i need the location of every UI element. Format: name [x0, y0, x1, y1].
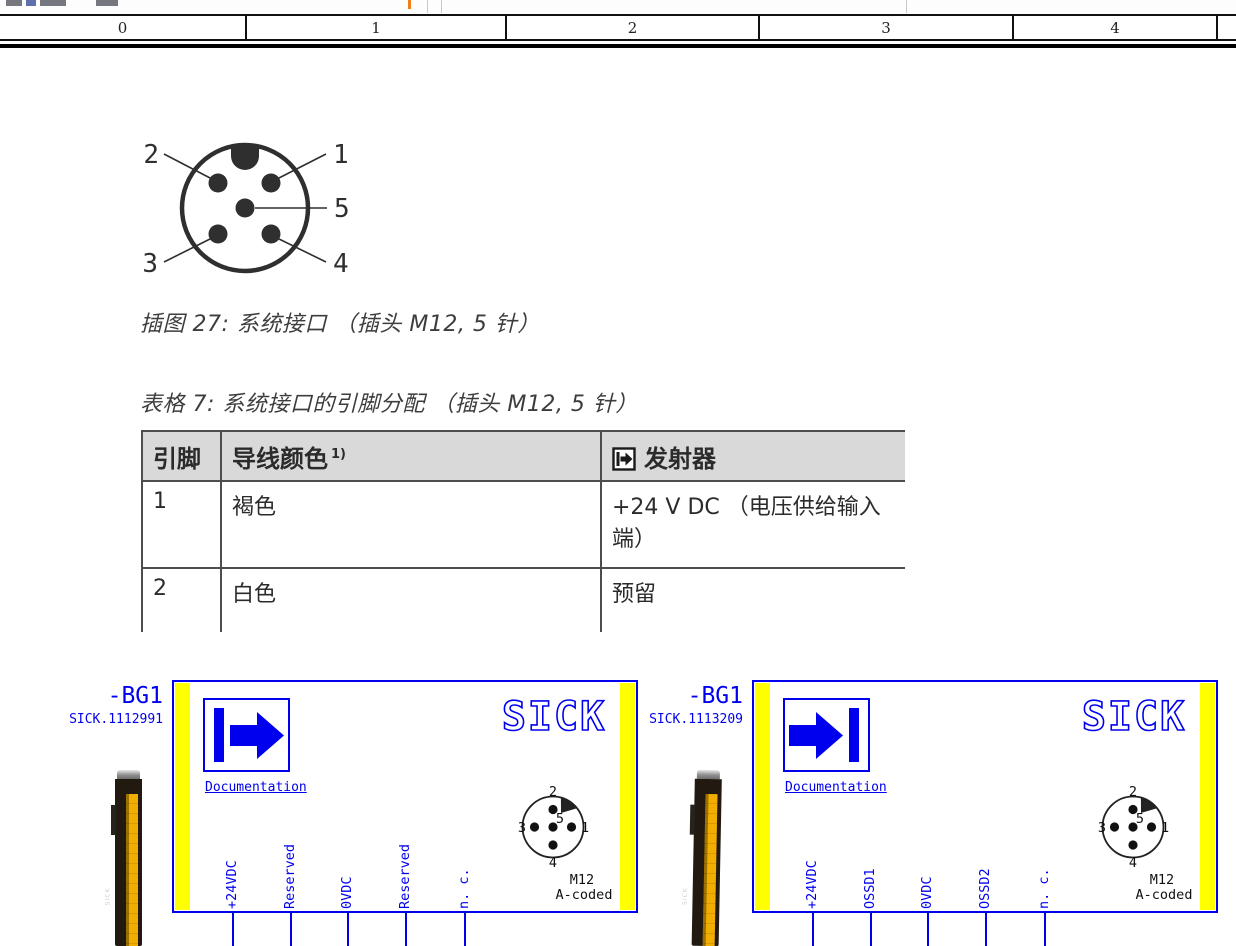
- device-yellow-stripe: [126, 794, 138, 946]
- arrow-head: [257, 712, 284, 759]
- wire[interactable]: [464, 913, 466, 946]
- toolbar-fragment: [96, 0, 118, 6]
- wire[interactable]: [1044, 913, 1046, 946]
- conn-pin-3: 3: [518, 820, 526, 836]
- wire[interactable]: [985, 913, 987, 946]
- ruler-cell-1: 1: [247, 16, 507, 39]
- device-bracket: [111, 805, 116, 835]
- pin-signal-label: 0VDC: [339, 876, 355, 909]
- device-bracket: [690, 805, 696, 835]
- device-group-receiver: -BG1 SICK.1113209 SICK SICK: [580, 655, 1236, 946]
- pin-2-dot: [209, 174, 228, 193]
- sick-logo: SICK: [1070, 692, 1198, 742]
- pin-signal-label: +24VDC: [804, 860, 820, 909]
- device-ref-tag[interactable]: -BG1: [40, 683, 163, 709]
- conn-pin-5: 5: [1136, 811, 1144, 827]
- emitter-bar: [214, 708, 224, 762]
- device-yellow-stripe: [703, 794, 718, 946]
- toolbar-separator: [441, 0, 442, 13]
- conn-pin-1: 1: [1161, 820, 1169, 836]
- pin-signal-label: Reserved: [397, 844, 413, 909]
- pin-signal-label: +24VDC: [224, 860, 240, 909]
- wire[interactable]: [870, 913, 872, 946]
- wire[interactable]: [927, 913, 929, 946]
- yellow-bar-left: [755, 683, 770, 910]
- arrow-shaft: [789, 725, 817, 746]
- cell-pin: 1: [143, 482, 222, 567]
- pin-4-dot: [262, 225, 281, 244]
- pin-assignment-table: 引脚 导线颜色1) 发射器 1 褐色 +24 V DC （电压供给输入端） 2: [141, 430, 905, 632]
- pin-label-1: 1: [333, 140, 349, 170]
- cell-wire-color: 白色: [222, 569, 602, 632]
- device-part-number[interactable]: SICK.1112991: [40, 712, 163, 727]
- arrow-head: [816, 712, 843, 759]
- cell-wire-color: 褐色: [222, 482, 602, 567]
- pin-signal-label: Reserved: [282, 844, 298, 909]
- table-header-row: 引脚 导线颜色1) 发射器: [143, 432, 905, 482]
- pin-signal-label: n. c.: [1036, 868, 1052, 909]
- app-window: 0 1 2 3 4 2 1 5 3 4 插图 27: 系统接口 （插头 M12,: [0, 0, 1236, 946]
- m12-pinout-figure: 2 1 5 3 4: [140, 110, 390, 310]
- footnote-marker: 1): [331, 447, 346, 462]
- conn-pin-5: 5: [556, 811, 564, 827]
- ruler-cell-2: 2: [507, 16, 760, 39]
- wire[interactable]: [405, 913, 407, 946]
- header-transmitter-text: 发射器: [644, 445, 716, 473]
- pin-signal-label: 0VDC: [919, 876, 935, 909]
- pin-label-5: 5: [334, 194, 350, 224]
- ruler-cell-3: 3: [760, 16, 1014, 39]
- emitter-symbol-box[interactable]: [203, 698, 290, 772]
- device-ref-tag[interactable]: -BG1: [620, 683, 743, 709]
- pin-signal-label: n. c.: [456, 868, 472, 909]
- conn-pin-3: 3: [1098, 820, 1106, 836]
- receiver-bar: [849, 708, 859, 762]
- device-body-label: SICK: [682, 887, 689, 905]
- toolbar-separator: [427, 0, 428, 13]
- cell-signal: 预留: [602, 569, 905, 632]
- ruler-cell-4: 4: [1014, 16, 1218, 39]
- column-ruler: 0 1 2 3 4: [0, 14, 1236, 41]
- documentation-link[interactable]: Documentation: [785, 780, 887, 795]
- pin-signal-label: OSSD2: [977, 868, 993, 909]
- page-frame-line: [0, 44, 1236, 48]
- pin-1-dot: [262, 174, 281, 193]
- conn-pin-4: 4: [549, 855, 557, 871]
- conn-type: M12: [1150, 872, 1174, 888]
- wire[interactable]: [232, 913, 234, 946]
- emitter-icon: [612, 447, 636, 477]
- device-body-label: SICK: [104, 888, 111, 906]
- receiver-symbol-box[interactable]: [783, 698, 870, 772]
- device-end-cap: [117, 770, 140, 779]
- conn-pin-4: 4: [1129, 855, 1137, 871]
- arrow-shaft: [230, 725, 258, 746]
- safety-light-curtain-photo[interactable]: SICK: [692, 770, 722, 946]
- svg-text:SICK: SICK: [1082, 694, 1186, 740]
- toolbar-cursor-mark: [408, 0, 411, 9]
- pin-label-3: 3: [142, 249, 158, 279]
- conn-pin-2: 2: [549, 785, 557, 800]
- device-part-number[interactable]: SICK.1113209: [620, 712, 743, 727]
- table-row: 2 白色 预留: [143, 569, 905, 632]
- pin-3-dot: [209, 225, 228, 244]
- m12-connector-symbol[interactable]: 2 3 5 1 4 M12 A-coded: [1085, 785, 1205, 910]
- conn-coding: A-coded: [1136, 887, 1193, 903]
- cell-pin: 2: [143, 569, 222, 632]
- toolbar-strip: [0, 0, 1236, 13]
- header-pin: 引脚: [143, 432, 222, 480]
- pin-label-4: 4: [333, 249, 349, 279]
- wire[interactable]: [347, 913, 349, 946]
- pin-signal-label: OSSD1: [862, 868, 878, 909]
- toolbar-separator: [906, 0, 907, 13]
- safety-light-curtain-photo[interactable]: SICK: [115, 770, 142, 946]
- device-group-emitter: -BG1 SICK.1112991 SICK SICK: [0, 655, 660, 946]
- figure-caption: 插图 27: 系统接口 （插头 M12, 5 针）: [140, 306, 700, 338]
- header-wire-color-text: 导线颜色: [232, 445, 328, 473]
- header-transmitter: 发射器: [602, 432, 905, 480]
- pin-label-2: 2: [143, 140, 159, 170]
- ruler-cell-partial: [1218, 16, 1236, 39]
- pin-5-dot: [236, 199, 255, 218]
- ruler-cell-0: 0: [0, 16, 247, 39]
- header-wire-color: 导线颜色1): [222, 432, 602, 480]
- cell-signal: +24 V DC （电压供给输入端）: [602, 482, 905, 567]
- toolbar-fragment: [40, 0, 66, 6]
- toolbar-fragment: [6, 0, 22, 6]
- wire[interactable]: [290, 913, 292, 946]
- device-end-cap: [697, 770, 720, 779]
- yellow-bar-left: [175, 683, 190, 910]
- wire[interactable]: [812, 913, 814, 946]
- conn-pin-2: 2: [1129, 785, 1137, 800]
- documentation-link[interactable]: Documentation: [205, 780, 307, 795]
- device-body: SICK: [692, 779, 722, 946]
- toolbar-fragment: [26, 0, 36, 6]
- table-caption: 表格 7: 系统接口的引脚分配 （插头 M12, 5 针）: [140, 386, 760, 418]
- table-row: 1 褐色 +24 V DC （电压供给输入端）: [143, 482, 905, 569]
- device-body: SICK: [115, 779, 142, 946]
